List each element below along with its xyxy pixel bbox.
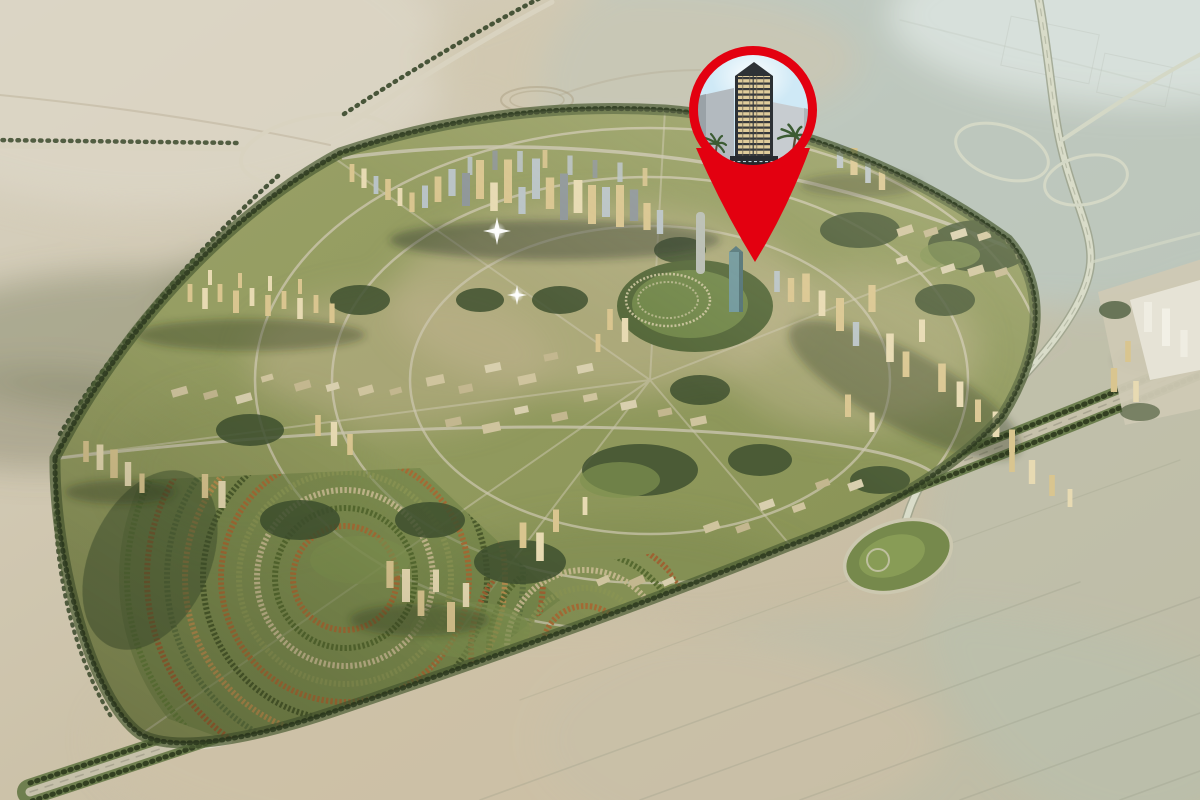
photo-main-tower (730, 62, 778, 168)
aerial-scene (0, 0, 1200, 800)
aerial-render (0, 0, 1200, 800)
